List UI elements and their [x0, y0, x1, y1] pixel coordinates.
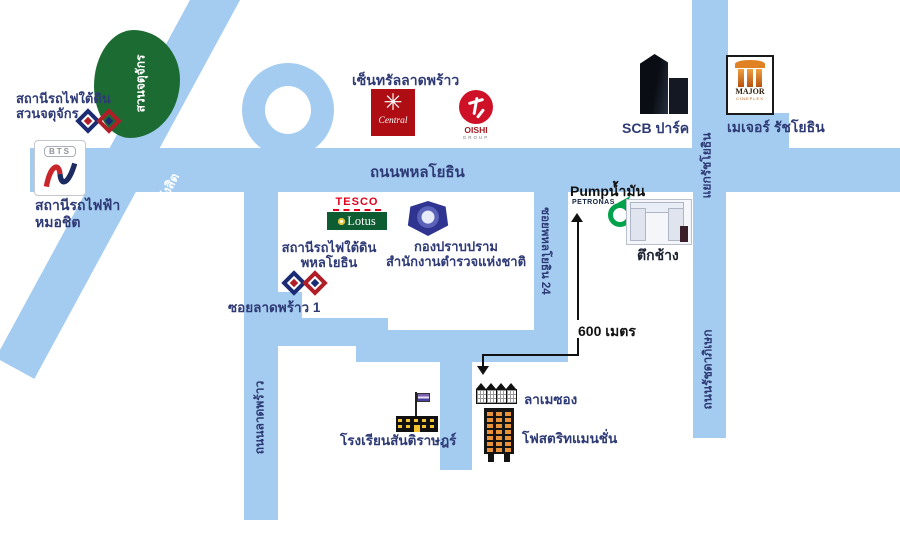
lotus-logo-box: Lotus [327, 212, 387, 230]
police-badge-icon [407, 201, 449, 236]
police-line1: กองปราบปราม [372, 239, 540, 254]
up-arrow-icon [571, 213, 583, 222]
bts-swoosh-icon [40, 159, 80, 189]
lotus-logo-text: Lotus [347, 214, 375, 228]
oishi-logo-sub: GROUP [455, 135, 497, 140]
road-mansion-lane [440, 350, 472, 470]
school-icon [396, 392, 438, 434]
road-ladprao [244, 190, 278, 520]
lotus-flower-icon [338, 218, 345, 225]
major-cineplex-logo: MAJOR CINEPLEX [726, 55, 774, 115]
school-label: โรงเรียนสันติราษฎร์ [340, 429, 456, 451]
distance-line [482, 354, 484, 366]
major-column [747, 69, 753, 87]
bts-mochit-line1: สถานีรถไฟฟ้า [35, 197, 120, 214]
mansion-column [496, 410, 502, 452]
mansion-leg [488, 454, 494, 462]
scb-park-label: SCB ปาร์ค [622, 118, 689, 140]
major-column [738, 69, 744, 87]
oishi-logo-text: OISHI [455, 126, 497, 135]
bts-mochit-station-label: สถานีรถไฟฟ้า หมอชิต [35, 197, 120, 231]
la-maison-label: ลาเมซอง [524, 388, 577, 410]
distance-label: 600 เมตร [578, 321, 636, 343]
major-logo-sub: CINEPLEX [728, 96, 772, 101]
central-logo: ✳ Central [371, 89, 415, 136]
oishi-circle-icon [459, 90, 493, 124]
chatuchak-park-label: สวนจตุจักร [132, 44, 151, 124]
house-icon [506, 383, 517, 404]
major-ratchayothin-label: เมเจอร์ รัชโยธิน [727, 117, 825, 139]
mrt-logo-phahonyothin [282, 268, 332, 298]
major-arch-icon [735, 60, 765, 68]
mansion-leg [504, 454, 510, 462]
police-label: กองปราบปราม สำนักงานตำรวจแห่งชาติ [372, 239, 540, 269]
mansion-column [505, 410, 511, 452]
central-star-icon: ✳ [371, 89, 415, 116]
distance-line [482, 354, 579, 356]
police-line2: สำนักงานตำรวจแห่งชาติ [372, 254, 540, 269]
flag-icon [417, 393, 430, 402]
oishi-logo: OISHI GROUP [455, 90, 497, 140]
elephant-tower-left [630, 208, 646, 241]
road-label-ladprao: ถนนลาดพร้าว [251, 372, 270, 464]
road-label-phahonyothin: ถนนพหลโยธิน [370, 160, 465, 184]
uturn-ramp-loop [242, 63, 334, 157]
distance-line [577, 222, 579, 320]
road-label-soi-ladprao-1: ซอยลาดพร้าว 1 [228, 296, 320, 318]
elephant-tower-label: ตึกช้าง [637, 245, 679, 267]
scb-tower-icon [669, 78, 688, 114]
bts-mochit-line2: หมอชิต [35, 214, 120, 231]
mrt-chatuchak-line1: สถานีรถไฟใต้ดิน [16, 91, 111, 106]
elephant-tower-image [626, 199, 692, 245]
tesco-dashes [333, 209, 381, 211]
map-canvas: สวนจตุจักร ถนนพหลโยธิน ถนนวิภาวดี - รังส… [0, 0, 900, 540]
elephant-tower-block [680, 226, 688, 242]
major-columns-icon [728, 69, 772, 87]
major-column [756, 69, 762, 87]
tesco-lotus-logo: TESCO Lotus [327, 197, 387, 230]
bts-logo: BTS [34, 140, 86, 196]
scb-park-building [638, 54, 690, 116]
rowhouse-icon [476, 383, 516, 404]
major-logo-text: MAJOR [728, 87, 772, 96]
mansion-icon [484, 408, 516, 462]
tesco-logo-text: TESCO [327, 197, 387, 208]
mrt-phahonyothin-line1: สถานีรถไฟใต้ดิน [272, 241, 386, 256]
scb-tower-icon [640, 54, 668, 114]
down-arrow-icon [477, 366, 489, 375]
oishi-brushstroke [476, 108, 485, 119]
mansion-label: โฟสตริทแมนชั่น [522, 427, 617, 449]
bts-logo-text: BTS [44, 146, 76, 157]
mrt-phahonyothin-station-label: สถานีรถไฟใต้ดิน พหลโยธิน [272, 241, 386, 270]
road-label-ratchadaphisek: ถนนรัชดาภิเษก [699, 323, 718, 417]
label-ratchayothin-intersection: แยกรัชโยธิน [698, 120, 717, 212]
mansion-column [487, 410, 493, 452]
mrt-logo-chatuchak [76, 106, 126, 136]
central-logo-text: Central [371, 116, 415, 126]
